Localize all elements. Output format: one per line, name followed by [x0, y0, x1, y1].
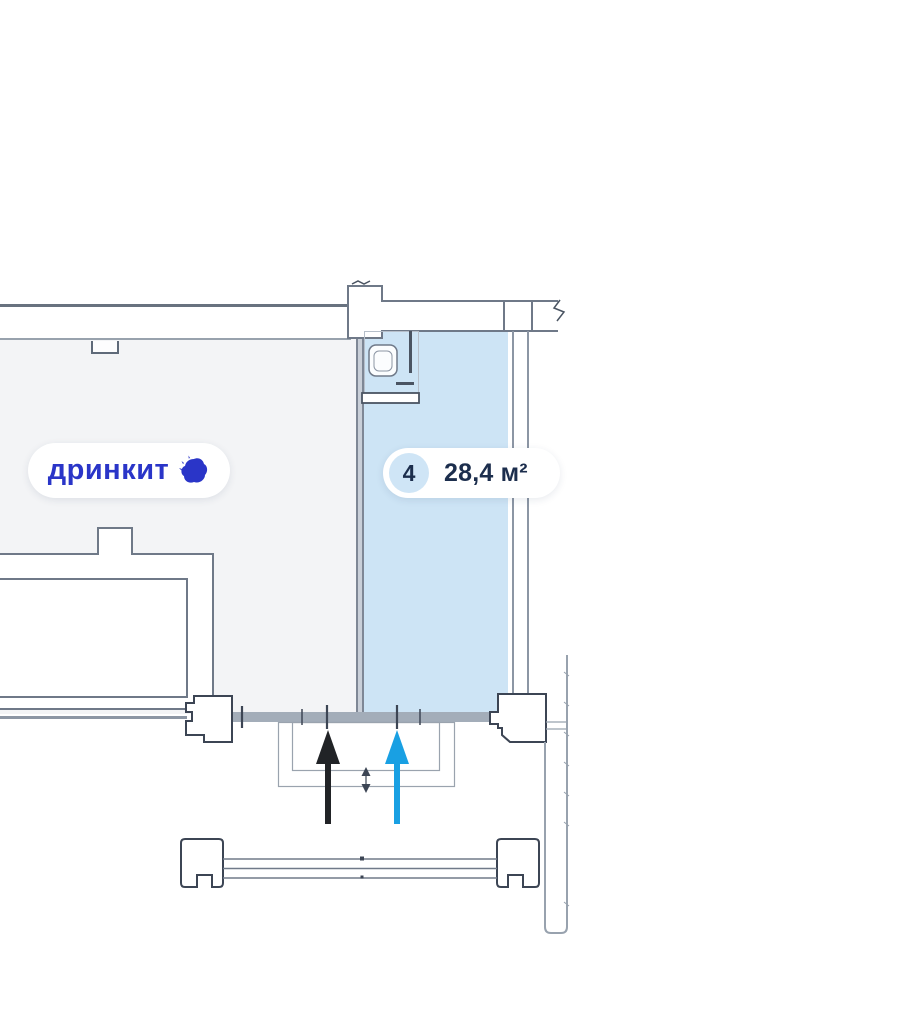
unit-number-circle: 4: [389, 453, 429, 493]
unit-4-room-area[interactable]: [364, 331, 508, 714]
drinkit-splash-logo-icon: [178, 455, 210, 487]
entrance-porch-outline: [279, 723, 455, 787]
tenant-pill[interactable]: дринкит: [28, 443, 230, 498]
unit-right-wall-line: [512, 331, 514, 695]
outer-right-wall-line: [527, 331, 529, 742]
top-right-wall: [381, 300, 558, 332]
top-pier-column: [347, 285, 383, 339]
wall-notch: [91, 341, 119, 354]
annex-inner-wall-cap: [0, 578, 14, 698]
right-boundary-wall: [545, 655, 569, 933]
tenant-name-label: дринкит: [48, 456, 170, 485]
blue-entry-arrow: [385, 730, 409, 824]
black-entry-arrow: [316, 730, 340, 824]
bottom-wall-band: [222, 712, 514, 722]
unit-number: 4: [403, 460, 416, 487]
wall-divider: [531, 302, 533, 330]
bottom-left-wall-line: [0, 716, 187, 719]
stair-column-right: [497, 839, 539, 887]
partition-wall: [356, 331, 364, 714]
dimension-marker: [362, 767, 371, 793]
stair-railing-lines: [223, 857, 497, 879]
structural-columns: [181, 694, 546, 887]
annex-inner-wall: [14, 578, 188, 698]
floor-plan: дринкит 4 28,4 м²: [0, 0, 903, 1024]
unit-4-badge[interactable]: 4 28,4 м²: [383, 448, 560, 498]
top-left-wall: [0, 304, 351, 340]
wall-divider: [503, 302, 505, 330]
unit-area-label: 28,4 м²: [444, 459, 528, 488]
stair-column-left: [181, 839, 223, 887]
annex-top-tab: [97, 527, 133, 555]
